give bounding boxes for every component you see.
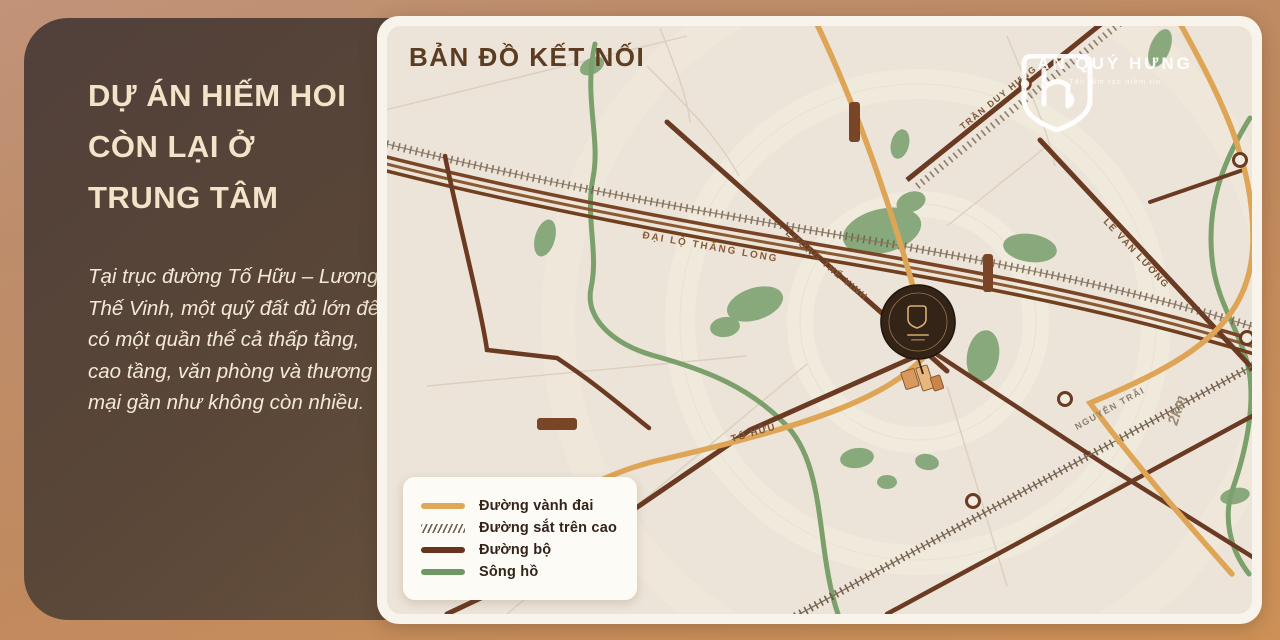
road-label: TỐ HỮU (730, 421, 778, 445)
title-line-2: CÒN LẠI Ở (88, 121, 388, 172)
legend-item-river-lake: Sông hồ (421, 564, 617, 580)
left-content: DỰ ÁN HIẾM HOI CÒN LẠI Ở TRUNG TÂM Tại t… (88, 70, 388, 419)
scale-label: 2km (1164, 393, 1190, 428)
brand-logo: AN QUÝ HƯNG Tận tâm tạo niềm tin (1020, 54, 1210, 86)
legend-item-elevated-rail: Đường sắt trên cao (421, 520, 617, 536)
legend-item-road: Đường bộ (421, 542, 617, 558)
map-legend: Đường vành đai Đường sắt trên cao Đường … (403, 477, 637, 600)
map-title: BẢN ĐỒ KẾT NỐI (409, 42, 645, 73)
legend-item-ring-road: Đường vành đai (421, 498, 617, 514)
page-title: DỰ ÁN HIẾM HOI CÒN LẠI Ở TRUNG TÂM (88, 70, 388, 223)
title-line-3: TRUNG TÂM (88, 172, 388, 223)
ring-road-swatch-icon (421, 503, 465, 509)
river-lake-swatch-icon (421, 569, 465, 575)
intro-paragraph: Tại trục đường Tố Hữu – Lương Thế Vinh, … (88, 261, 390, 419)
road-labels: ĐẠI LỘ THĂNG LONG LƯƠNG THẾ VINH TỐ HỮU … (641, 63, 1190, 444)
elevated-rail-swatch-icon (421, 524, 465, 533)
shield-logo-icon (1020, 54, 1094, 132)
map-card: ĐẠI LỘ THĂNG LONG LƯƠNG THẾ VINH TỐ HỮU … (377, 16, 1262, 624)
brand-tagline: Tận tâm tạo niềm tin (1020, 77, 1210, 86)
location-pin (876, 280, 960, 364)
legend-label: Đường bộ (479, 542, 551, 558)
project-marker (876, 280, 960, 391)
title-line-1: DỰ ÁN HIẾM HOI (88, 70, 388, 121)
legend-label: Đường vành đai (479, 498, 594, 514)
legend-label: Đường sắt trên cao (479, 520, 617, 536)
map-canvas: ĐẠI LỘ THĂNG LONG LƯƠNG THẾ VINH TỐ HỮU … (387, 26, 1252, 614)
road-swatch-icon (421, 547, 465, 553)
legend-label: Sông hồ (479, 564, 538, 580)
